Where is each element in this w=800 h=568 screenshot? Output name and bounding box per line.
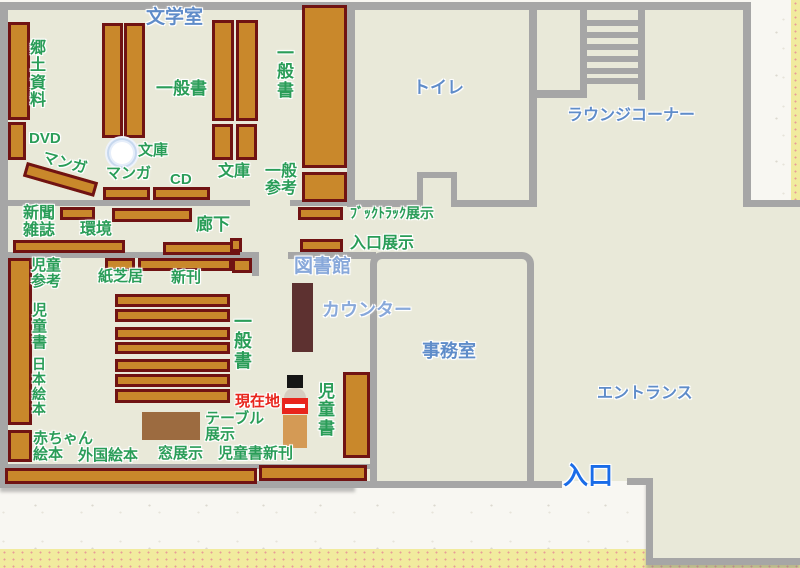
wall-main-right: [347, 2, 355, 207]
label-general-books-children: 一般書: [234, 313, 254, 371]
label-bunko-pillar: 文庫: [138, 143, 168, 159]
bookshelf-children-right: [343, 372, 370, 458]
bookshelf: [236, 20, 258, 121]
bookshelf-small: [232, 258, 252, 273]
stairs-step: [580, 20, 645, 26]
wall-entrance-lower-bottom: [646, 558, 800, 565]
label-kamishibai: 紙芝居: [98, 269, 143, 285]
display-table: [142, 412, 200, 440]
label-window-display: 窓展示: [158, 446, 203, 462]
bookshelf-row: [115, 327, 230, 340]
label-japanese-picture-books: 日本絵本: [32, 357, 48, 417]
bookshelf-corridor: [112, 208, 192, 222]
label-counter: カウンター: [322, 301, 412, 320]
wall-entrance-lower-left: [646, 478, 653, 565]
label-general-books-2: 一般書: [277, 45, 296, 100]
marker-body: [283, 415, 307, 448]
bookshelf-general-tall: [302, 5, 347, 168]
bookshelf-row: [115, 342, 230, 354]
wall-left: [0, 2, 8, 488]
label-children-books-right: 児童書: [318, 383, 337, 438]
bookshelf-general-reference: [302, 172, 347, 202]
office-walls: [370, 252, 534, 488]
label-literature-room: 文学室: [146, 8, 203, 29]
bookshelf-row: [115, 374, 230, 387]
label-children-books-left: 児童書: [32, 303, 49, 352]
wall-lounge-right: [743, 2, 751, 207]
label-newspapers-magazines: 新聞雑誌: [23, 205, 58, 240]
marker-shoulders: [284, 388, 306, 398]
label-environment: 環境: [80, 221, 112, 238]
label-dvd: DVD: [29, 131, 61, 147]
label-current-location: 現在地: [235, 394, 280, 410]
pillar: [111, 142, 133, 164]
bookshelf-dvd: [8, 122, 26, 160]
bookshelf-row: [115, 309, 230, 322]
label-office: 事務室: [422, 342, 476, 361]
bookshelf-bunko: [212, 124, 233, 160]
stairs-step: [580, 78, 645, 84]
stairs-step: [580, 32, 645, 38]
bookshelf-row: [115, 389, 230, 403]
counter-desk: [292, 283, 313, 352]
label-manga: マンガ: [106, 166, 151, 182]
stairs-step: [580, 56, 645, 62]
label-new-arrivals: 新刊: [171, 270, 201, 286]
bookshelf-small: [230, 238, 242, 252]
label-children-new-arrivals: 児童書新刊: [218, 446, 293, 462]
label-table-display: テーブル展示: [205, 411, 271, 443]
label-corridor: 廊下: [196, 216, 230, 234]
bookshelf-cd: [153, 187, 210, 200]
label-foreign-picture-books: 外国絵本: [78, 448, 138, 464]
stairs-step: [580, 44, 645, 50]
bookshelf-children-left-column: [8, 258, 32, 425]
label-entrance-door: 入口: [563, 463, 613, 490]
marker-head: [287, 375, 303, 388]
label-library: 図書館: [294, 257, 351, 278]
paper-edge-right: [791, 0, 800, 212]
bookshelf-corridor: [163, 242, 240, 255]
label-toilet: トイレ: [413, 79, 464, 97]
bookshelf-booktruck-display: [298, 207, 343, 220]
bookshelf-baby-books: [8, 430, 32, 462]
stairs-step: [580, 68, 645, 74]
label-children-reference: 児童参考: [31, 258, 64, 290]
bookshelf-row: [115, 359, 230, 372]
bookshelf-newspapers: [60, 207, 95, 220]
bookshelf: [124, 23, 145, 138]
marker-badge-stripe: [285, 404, 305, 408]
label-lounge-corner: ラウンジコーナー: [567, 107, 695, 124]
bookshelf-local-materials: [8, 22, 30, 120]
bookshelf-entrance-display: [300, 239, 343, 252]
label-booktruck-display: ﾌﾞｯｸﾄﾗｯｸ展示: [350, 206, 434, 221]
stairs-base-wall: [531, 90, 587, 98]
label-local-materials: 郷土資料: [30, 40, 48, 109]
label-general-books-1: 一般書: [156, 80, 207, 98]
bookshelf-corridor: [13, 240, 125, 253]
library-floor-map: { "rooms": [ {"id": "literature-room", "…: [0, 0, 800, 568]
current-location-marker: [281, 374, 309, 448]
bookshelf-bunko: [236, 124, 257, 160]
wall-toilet-bottom-right: [455, 200, 532, 207]
label-entrance-display: 入口展示: [350, 235, 414, 252]
wall-corridor-stub: [252, 252, 259, 276]
entrance-lower-floor: [646, 480, 800, 565]
bookshelf: [102, 23, 123, 138]
label-entrance-hall: エントランス: [597, 385, 693, 402]
bookshelf-window-display-right: [259, 465, 367, 481]
wall-lounge-bottom-right: [743, 200, 800, 207]
bookshelf-row: [115, 294, 230, 307]
label-cd: CD: [170, 172, 192, 188]
bookshelf: [212, 20, 234, 121]
label-general-reference: 一般参考: [265, 163, 300, 198]
bookshelf-manga: [103, 187, 150, 200]
wall-toilet-lounge: [529, 2, 537, 207]
label-bunko: 文庫: [218, 163, 250, 180]
bookshelf-window-display-left: [5, 468, 257, 484]
